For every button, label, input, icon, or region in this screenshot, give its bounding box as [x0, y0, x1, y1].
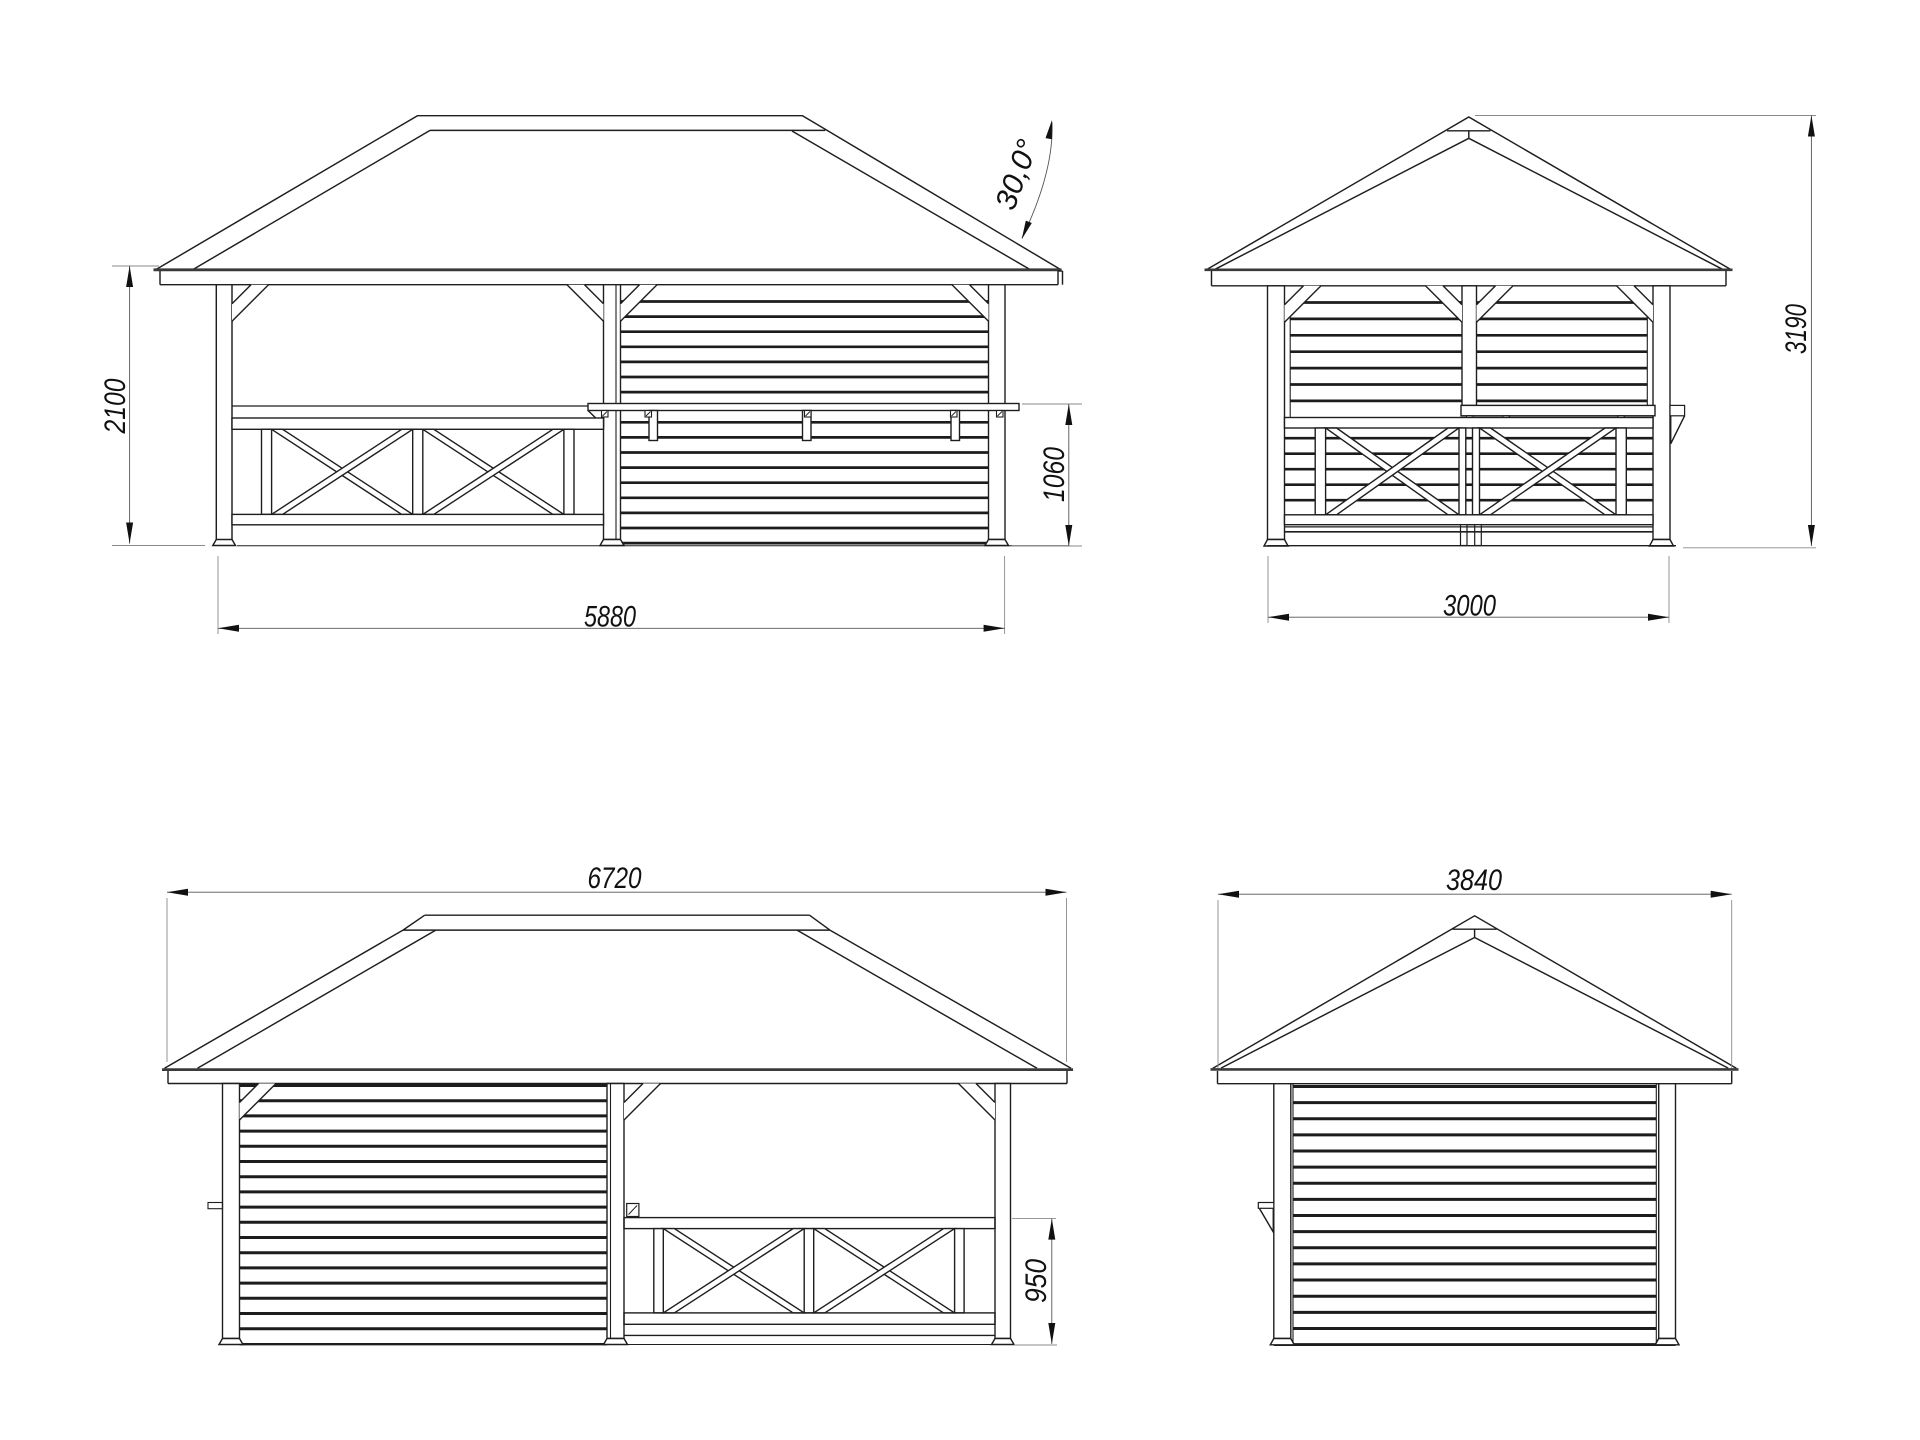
- svg-text:3840: 3840: [1446, 864, 1502, 897]
- svg-text:3190: 3190: [1780, 304, 1813, 354]
- svg-text:5880: 5880: [584, 601, 636, 634]
- svg-text:1060: 1060: [1038, 447, 1071, 502]
- svg-text:950: 950: [1020, 1259, 1053, 1303]
- svg-text:6720: 6720: [588, 862, 642, 895]
- svg-text:3000: 3000: [1443, 590, 1496, 623]
- svg-text:2100: 2100: [99, 378, 132, 434]
